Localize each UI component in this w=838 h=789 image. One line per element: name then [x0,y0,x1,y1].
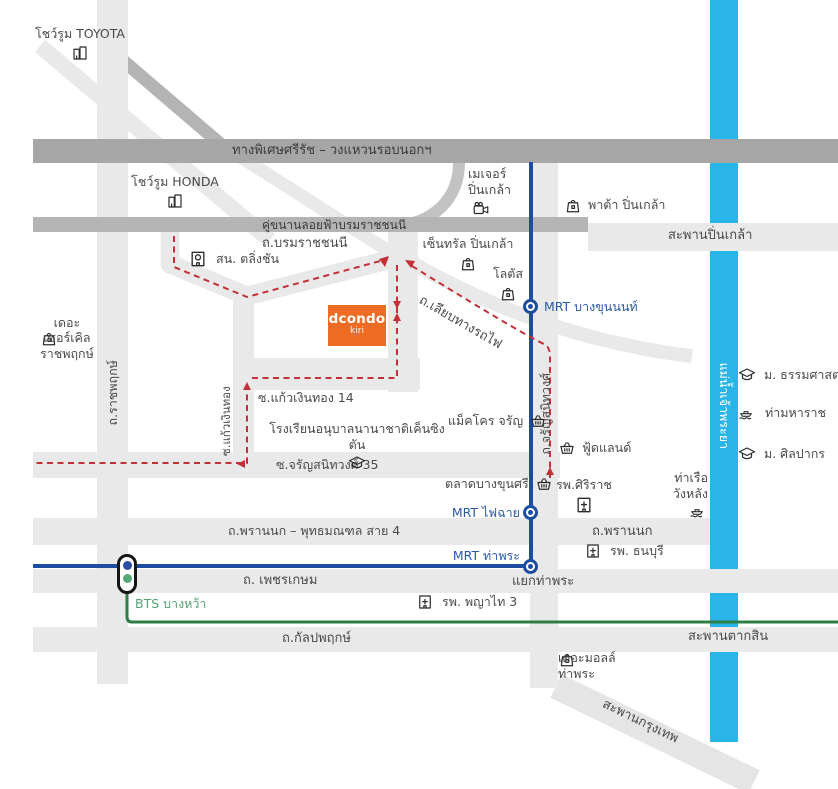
cinema-icon [472,200,490,218]
landmark-label: ม. ธรรมศาสตร์ [764,367,838,383]
shopping-bag-icon [459,254,477,272]
landmark-label: ตลาดบางขุนศรี [445,476,529,492]
landmark-lotus: โลตัส [486,266,530,302]
landmark-toyota-showroom: โชว์รูม TOYOTA [28,26,132,62]
landmark-label-lines: เดอะ เซอร์เคิล ราชพฤกษ์ [40,315,94,362]
landmark-label: ราชพฤกษ์ [40,346,94,362]
landmark-label: โลตัส [493,266,523,282]
landmark-pata-pinklao: พาต้า ปิ่นเกล้า [564,196,665,214]
landmark-the-circle-ratchaphruek: เดอะ เซอร์เคิล ราชพฤกษ์ [40,329,58,347]
landmark-honda-showroom: โชว์รูม HONDA [130,174,220,210]
shopping-bag-icon [564,196,582,214]
hospital-icon [574,495,594,515]
landmark-label: รพ. ธนบุรี [610,543,664,559]
road-label-kukanan: คู่ขนานลอยฟ้าบรมราชชนนี [262,218,406,233]
mrt-tha-phra-label: MRT ท่าพระ [450,548,520,564]
landmark-foodland: ฟู้ดแลนด์ [558,439,631,457]
hospital-icon [584,542,602,560]
road-expressway [33,139,838,163]
landmark-label: ท่าพระ [558,666,595,682]
landmark-major-pinklao: เมเจอร์ ปิ่นเกล้า [468,166,511,218]
landmark-thonburi-hospital: รพ. ธนบุรี [584,542,664,560]
landmark-silpakorn-university: ม. ศิลปากร [738,445,825,463]
market-basket-icon [558,439,576,457]
landmark-label: ปิ่นเกล้า [468,182,511,198]
road-phetkasem [33,569,838,593]
landmark-label: โชว์รูม TOYOTA [35,26,125,42]
landmark-label: เดอะมอลล์ [558,650,616,666]
mrt-station-fai-chai [523,505,538,520]
hospital-icon [416,593,434,611]
landmark-kensington-kindergarten: โรงเรียนอนุบาลนานาชาติเค็นซิงตัน [262,421,452,472]
location-map: ทางพิเศษศรีรัช – วงแหวนรอบนอกฯ คู่ขนานลอ… [0,0,838,789]
road-label-phran-nok: ถ.พรานนก [592,524,653,540]
building-icon [71,44,89,62]
bts-bang-wa-label: BTS บางหว้า [135,596,206,612]
landmark-label: รพ. พญาไท 3 [442,594,517,610]
landmark-label: เดอะ [54,315,81,331]
landmark-label: โรงเรียนอนุบาลนานาชาติเค็นซิงตัน [262,421,452,452]
mrt-dot [123,561,132,570]
police-station-icon [188,249,208,269]
landmark-label: ท่ามหาราช [765,405,826,421]
landmark-label: รพ.ศิริราช [556,477,612,493]
landmark-makro-charan: แม็คโคร จรัญ [448,412,547,430]
landmark-label: เซ็นทรัล ปิ่นเกล้า [423,236,514,252]
road-label-saphan-pinklao: สะพานปิ่นเกล้า [668,228,752,244]
landmark-thammasat-university: ม. ธรรมศาสตร์ [738,366,838,384]
bts-dot [123,574,132,583]
landmark-tha-maharat: ท่ามหาราช [735,405,826,421]
road-label-kaew-ngoen-thong-14: ซ.แก้วเงินทอง 14 [258,390,354,406]
landmark-label: พาต้า ปิ่นเกล้า [588,197,665,213]
university-icon [738,366,756,384]
school-icon [348,454,366,472]
road-kaew-ngoen-thong-14 [250,358,420,390]
landmark-wang-lang-pier: ท่าเรือ วังหลัง [662,470,708,519]
landmark-label: ฟู้ดแลนด์ [582,440,631,456]
landmark-label: เซอร์เคิล [43,330,90,346]
landmark-phyathai-3-hospital: รพ. พญาไท 3 [416,593,517,611]
landmark-siriraj-hospital: รพ.ศิริราช [556,477,612,515]
shopping-bag-icon [499,284,517,302]
label-yaek-tha-phra: แยกท่าพระ [512,574,574,590]
road-label-phetkasem: ถ. เพชรเกษม [243,573,317,589]
river-label-chao-phraya: แม่น้ำเจ้าพระยา [716,346,732,466]
bts-mrt-interchange-marker [117,554,137,594]
road-label-phran-nok-phutthamonthon: ถ.พรานนก – พุทธมณฑล สาย 4 [228,523,400,539]
landmark-taling-chan-police: สน. ตลิ่งชัน [188,249,279,269]
landmark-label-lines: เดอะมอลล์ ท่าพระ [558,650,616,681]
market-basket-icon [529,412,547,430]
brand-sub: kiri [350,326,364,338]
pier-boat-icon [686,503,708,519]
landmark-talad-bang-khun-si: ตลาดบางขุนศรี [445,475,553,493]
pier-boat-icon [735,405,757,421]
road-label-saphan-taksin: สะพานตากสิน [688,629,768,645]
mrt-fai-chai-label: MRT ไฟฉาย [450,505,520,521]
brand-name: dcondo [329,313,386,327]
landmark-label: เมเจอร์ [468,166,506,182]
dcondo-kiri-logo: dcondo kiri [328,305,386,346]
landmark-the-mall-tha-phra: เดอะมอลล์ ท่าพระ [558,650,576,668]
road-label-kaew-ngoen-thong: ซ.แก้วเงินทอง [219,361,233,481]
market-basket-icon [535,475,553,493]
road-label-kanlapaphruek: ถ.กัลปพฤกษ์ [282,631,351,647]
landmark-label: สน. ตลิ่งชัน [216,251,279,267]
landmark-label: ม. ศิลปากร [764,446,825,462]
building-icon [166,192,184,210]
landmark-label: โชว์รูม HONDA [131,174,219,190]
road-label-expressway: ทางพิเศษศรีรัช – วงแหวนรอบนอกฯ [232,143,432,159]
mrt-station-tha-phra [523,559,538,574]
road-label-ratchaphruek: ถ.ราชพฤกษ์ [105,333,121,453]
landmark-label: วังหลัง [673,486,708,502]
mrt-bang-khun-non-label: MRT บางขุนนนท์ [544,299,638,315]
university-icon [738,445,756,463]
road-label-saphan-krungthep: สะพานกรุงเทพ [583,689,698,756]
landmark-label: ท่าเรือ [674,470,708,486]
landmark-label: แม็คโคร จรัญ [448,413,523,429]
